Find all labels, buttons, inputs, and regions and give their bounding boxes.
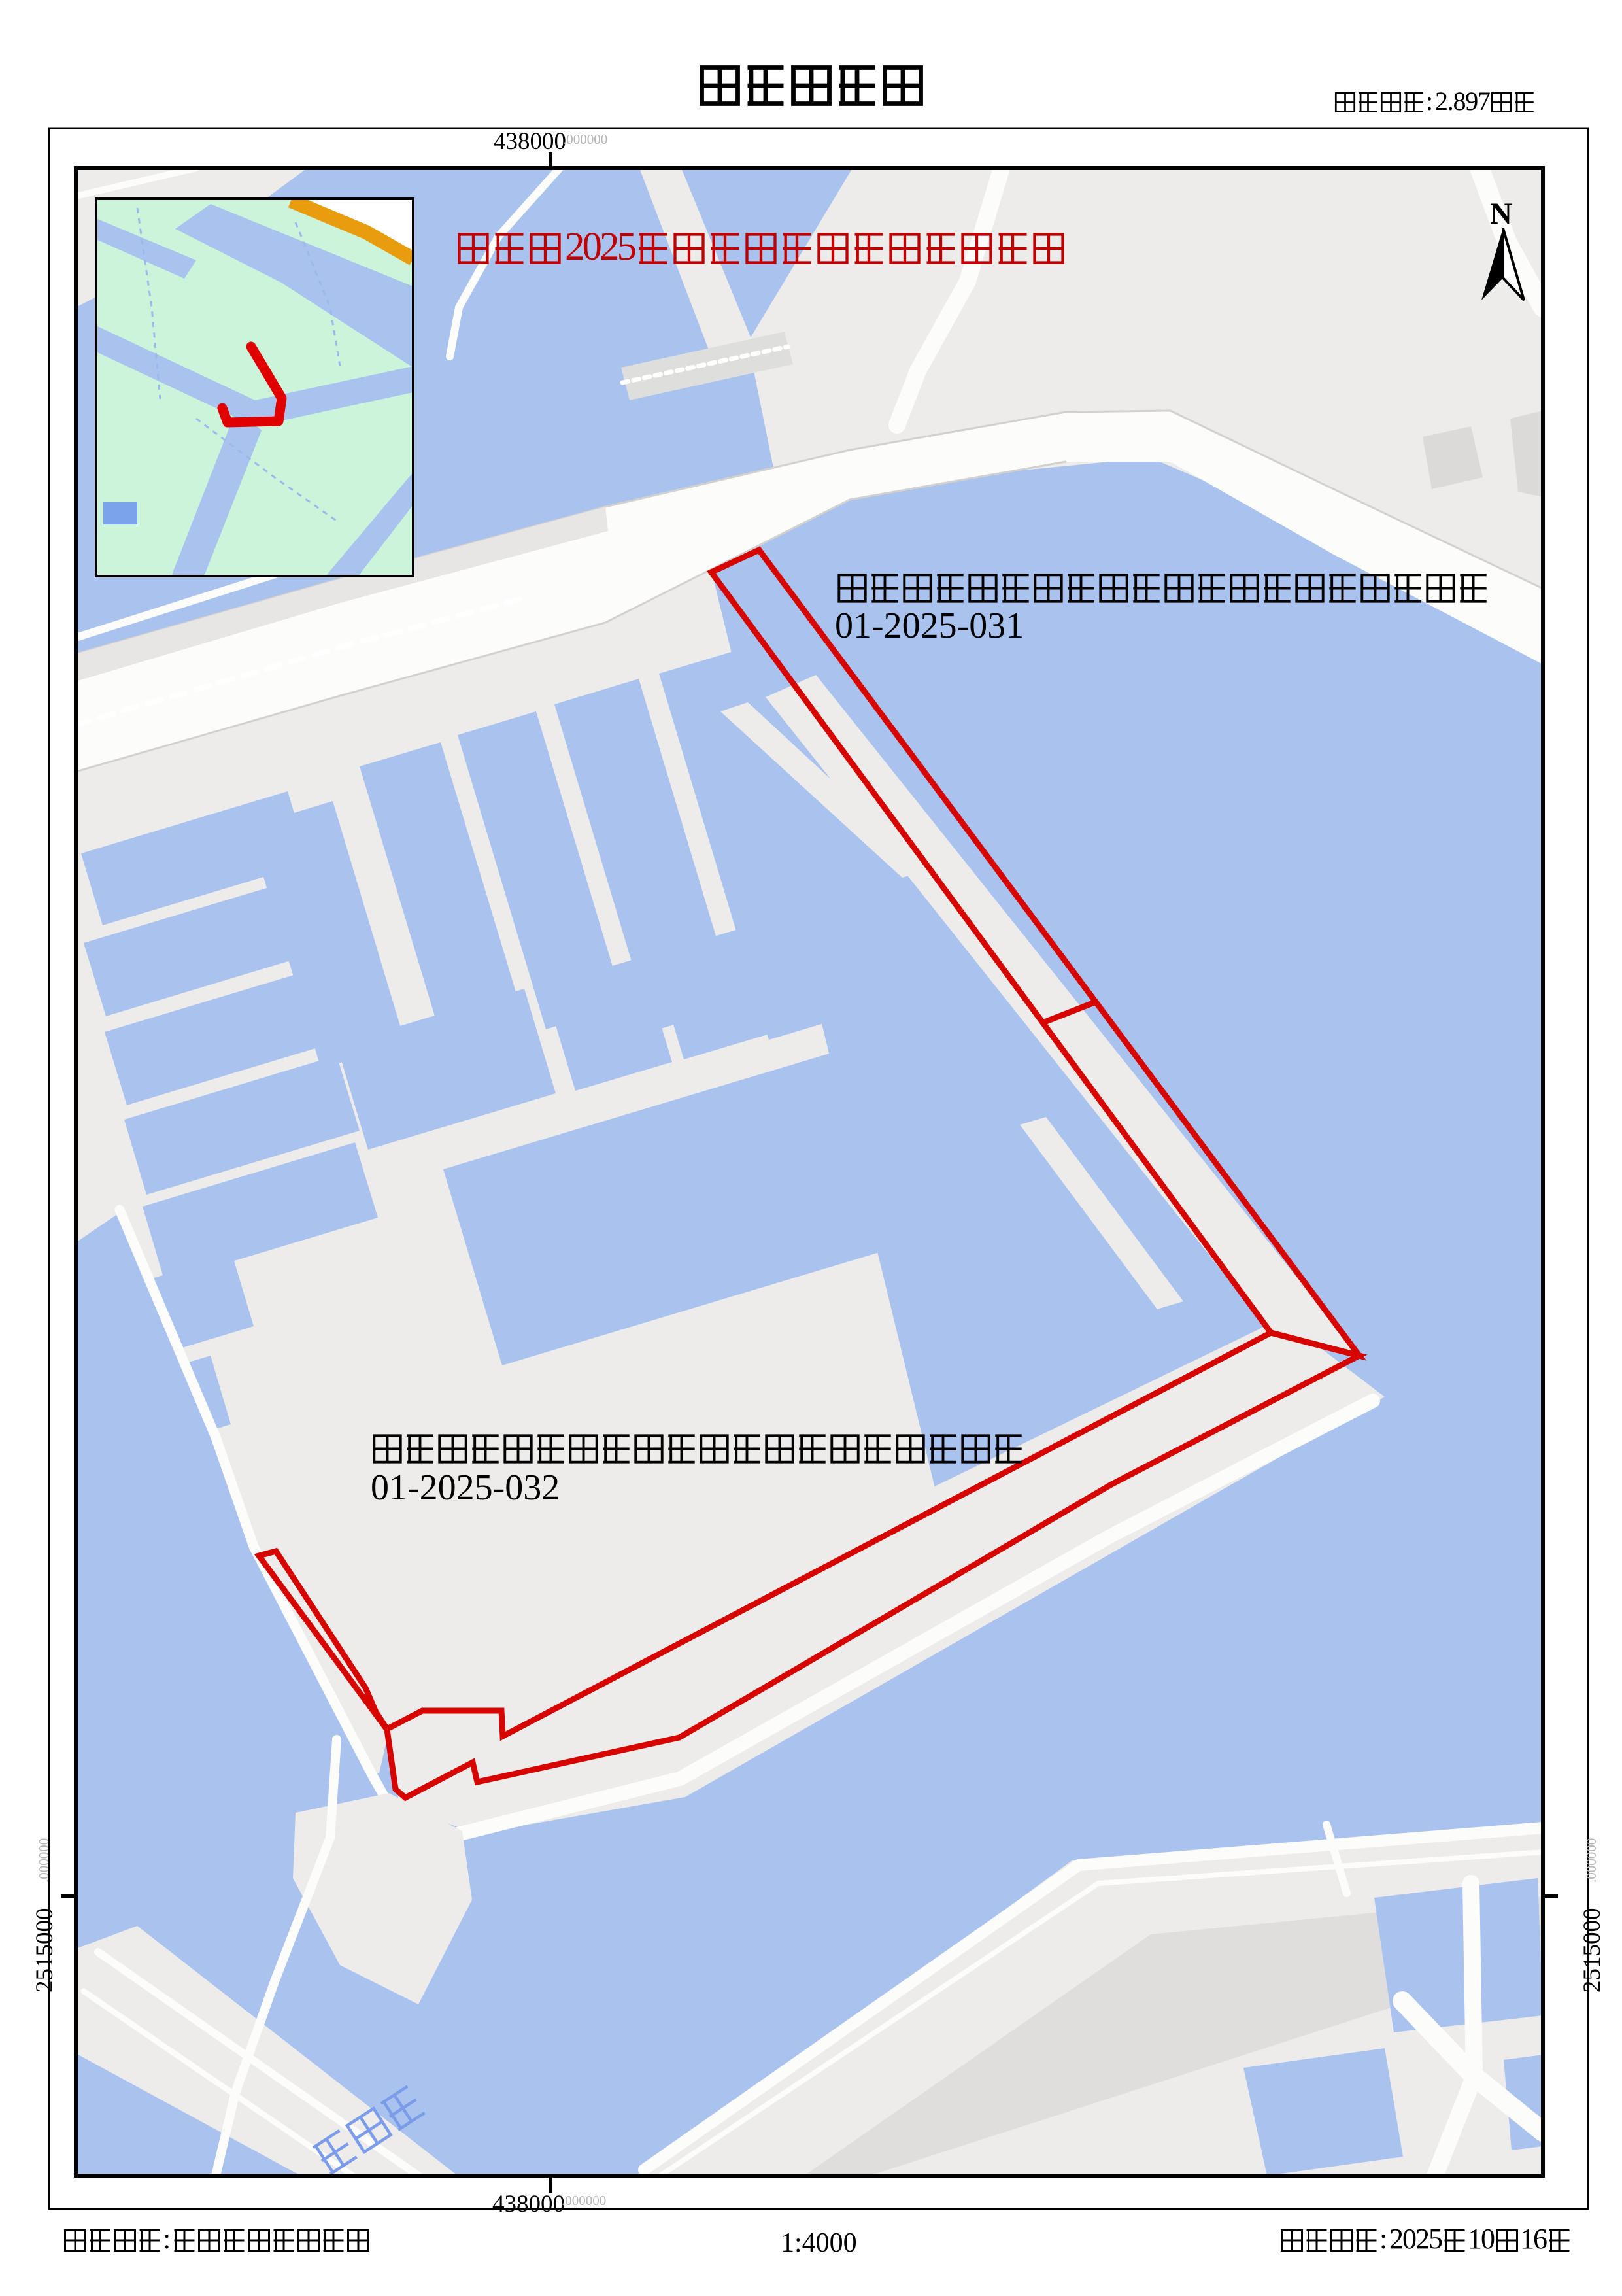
svg-text:2515000: 2515000 — [1579, 1908, 1606, 1993]
svg-text::: : — [1426, 86, 1433, 116]
svg-text:.000000: .000000 — [36, 1838, 52, 1883]
svg-text:438000: 438000 — [492, 2191, 565, 2218]
svg-text:.000000: .000000 — [563, 131, 607, 147]
svg-text:01-2025-031: 01-2025-031 — [835, 606, 1024, 646]
svg-text:10: 10 — [1468, 2223, 1495, 2255]
svg-text:N: N — [1490, 197, 1512, 231]
svg-text:2515000: 2515000 — [31, 1908, 58, 1993]
svg-text:16: 16 — [1520, 2223, 1547, 2255]
svg-text:01-2025-032: 01-2025-032 — [371, 1467, 560, 1508]
svg-text:1:4000: 1:4000 — [781, 2228, 857, 2258]
svg-text:438000: 438000 — [494, 128, 566, 155]
svg-text:2025: 2025 — [565, 225, 637, 269]
svg-text:2.897: 2.897 — [1435, 86, 1491, 116]
svg-text:.000000: .000000 — [562, 2193, 606, 2208]
svg-text::: : — [163, 2223, 171, 2255]
svg-text:2025: 2025 — [1389, 2223, 1443, 2255]
svg-text:.000000: .000000 — [1583, 1838, 1599, 1883]
svg-text::: : — [1379, 2223, 1387, 2255]
